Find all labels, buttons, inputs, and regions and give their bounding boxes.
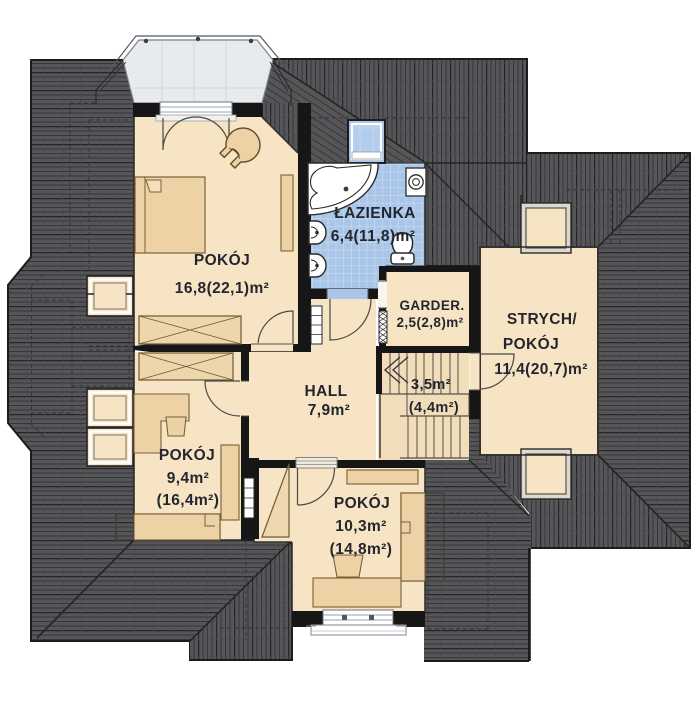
svg-text:10,3m²: 10,3m² [335, 518, 387, 535]
svg-text:9,4m²: 9,4m² [167, 470, 210, 487]
svg-text:6,4(11,8)m²: 6,4(11,8)m² [331, 228, 416, 245]
svg-text:7,9m²: 7,9m² [308, 402, 351, 419]
svg-text:STRYCH/: STRYCH/ [507, 311, 578, 328]
svg-text:POKÓJ: POKÓJ [334, 494, 390, 512]
svg-text:3,5m²: 3,5m² [411, 377, 451, 393]
svg-text:POKÓJ: POKÓJ [503, 335, 559, 353]
svg-text:(16,4m²): (16,4m²) [157, 492, 220, 509]
svg-text:GARDER.: GARDER. [399, 298, 464, 313]
svg-text:POKÓJ: POKÓJ [194, 251, 250, 269]
svg-text:2,5(2,8)m²: 2,5(2,8)m² [396, 315, 463, 330]
svg-text:16,8(22,1)m²: 16,8(22,1)m² [175, 280, 269, 297]
svg-text:11,4(20,7)m²: 11,4(20,7)m² [494, 361, 588, 378]
svg-text:(14,8m²): (14,8m²) [330, 541, 393, 558]
svg-text:HALL: HALL [305, 383, 348, 400]
svg-text:(4,4m²): (4,4m²) [409, 400, 459, 416]
svg-text:ŁAZIENKA: ŁAZIENKA [334, 205, 416, 222]
svg-text:POKÓJ: POKÓJ [159, 446, 215, 464]
